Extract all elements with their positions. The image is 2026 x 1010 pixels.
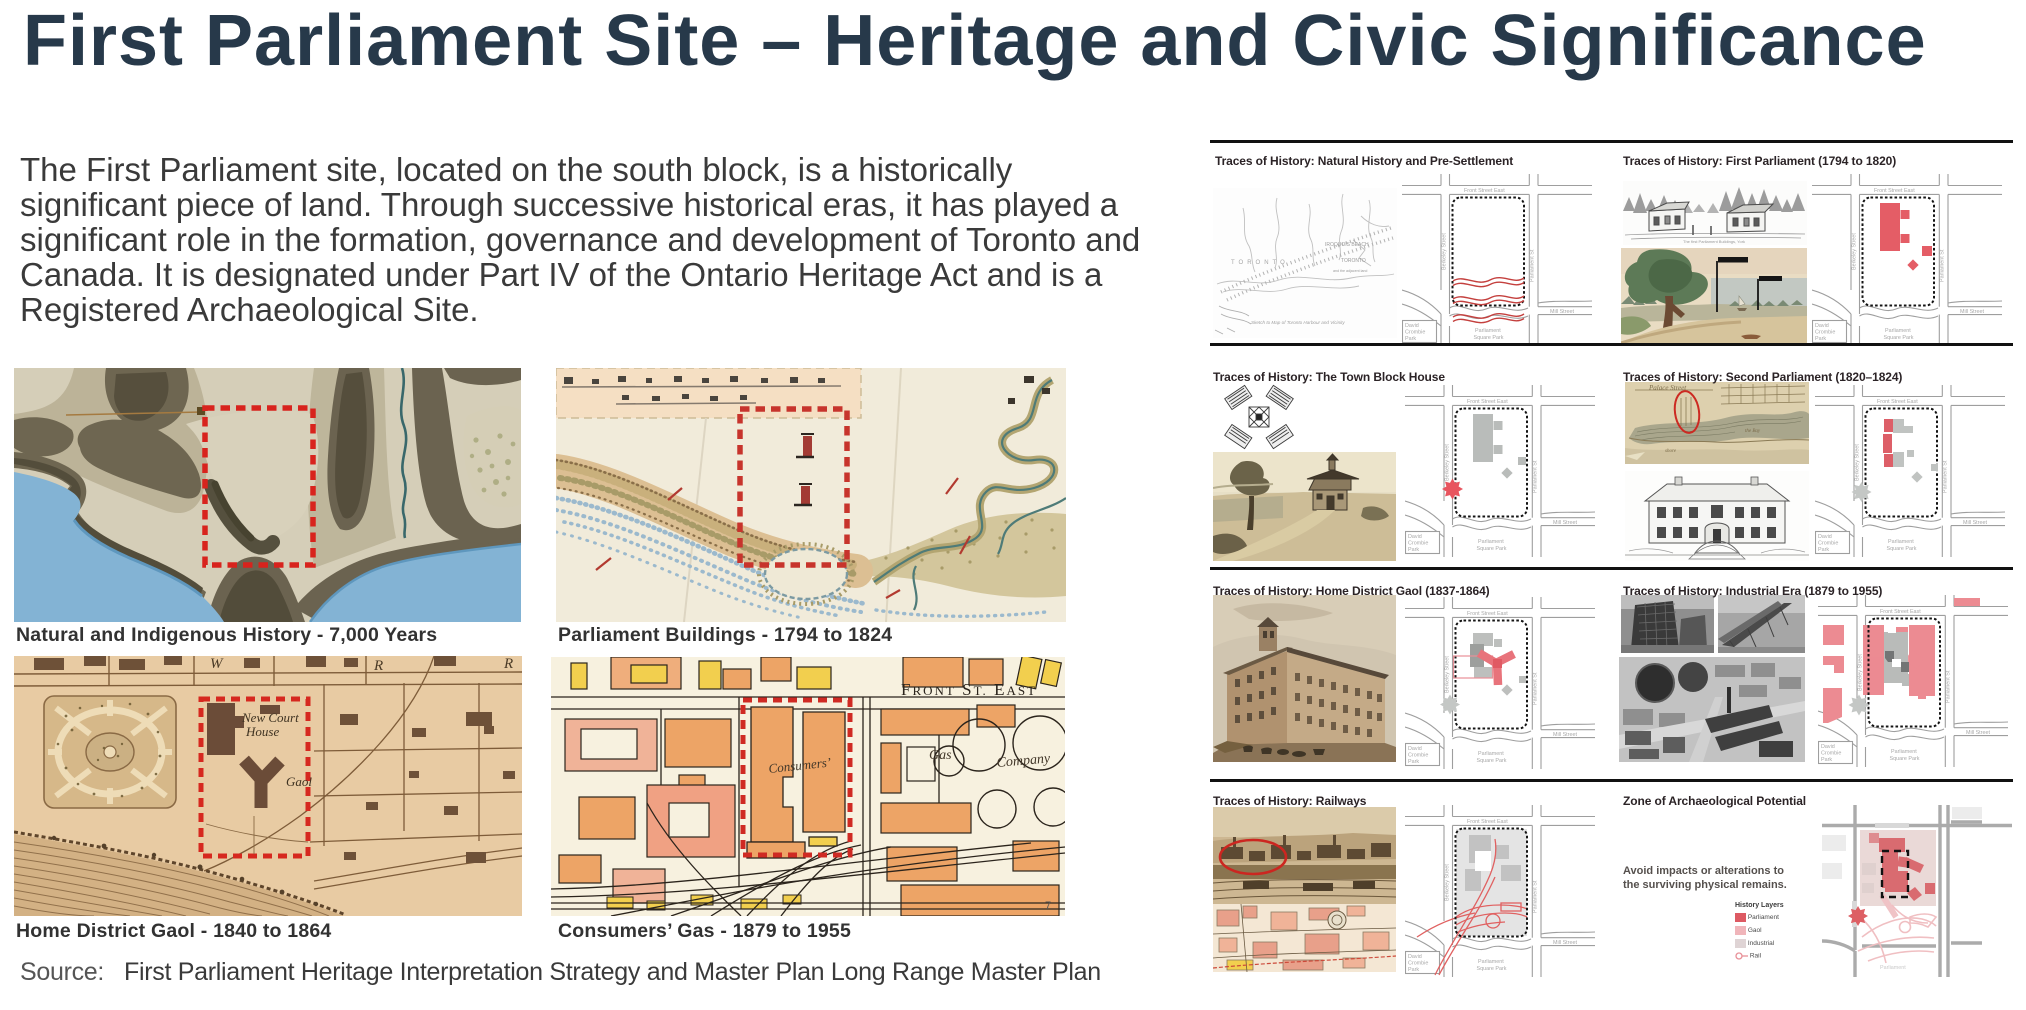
svg-text:TORONTO: TORONTO — [1341, 258, 1366, 264]
svg-text:Parliament: Parliament — [1880, 965, 1906, 971]
svg-text:R: R — [503, 656, 513, 672]
svg-text:Gas: Gas — [929, 748, 952, 763]
svg-text:New Court: New Court — [241, 710, 299, 725]
svg-text:IROQUOIS BEACH: IROQUOIS BEACH — [1325, 242, 1369, 248]
svg-text:FRONT ST. EAST: FRONT ST. EAST — [901, 680, 1037, 699]
svg-text:House: House — [245, 724, 279, 739]
svg-text:R: R — [373, 658, 383, 674]
svg-text:shore: shore — [1665, 449, 1677, 454]
svg-text:Palace Street: Palace Street — [1648, 384, 1687, 392]
svg-text:Gaol: Gaol — [286, 774, 312, 789]
svg-text:the Bay: the Bay — [1745, 429, 1761, 434]
svg-text:W: W — [210, 656, 224, 672]
svg-text:TORONTO: TORONTO — [1231, 260, 1289, 266]
svg-text:The first Parliament Buildings: The first Parliament Buildings, York — [1683, 239, 1745, 244]
svg-text:7: 7 — [1045, 900, 1051, 912]
svg-text:and the adjacent land: and the adjacent land — [1333, 269, 1367, 273]
svg-text:Sketch to Map of Toronto Harbo: Sketch to Map of Toronto Harbour and Vic… — [1251, 320, 1345, 325]
